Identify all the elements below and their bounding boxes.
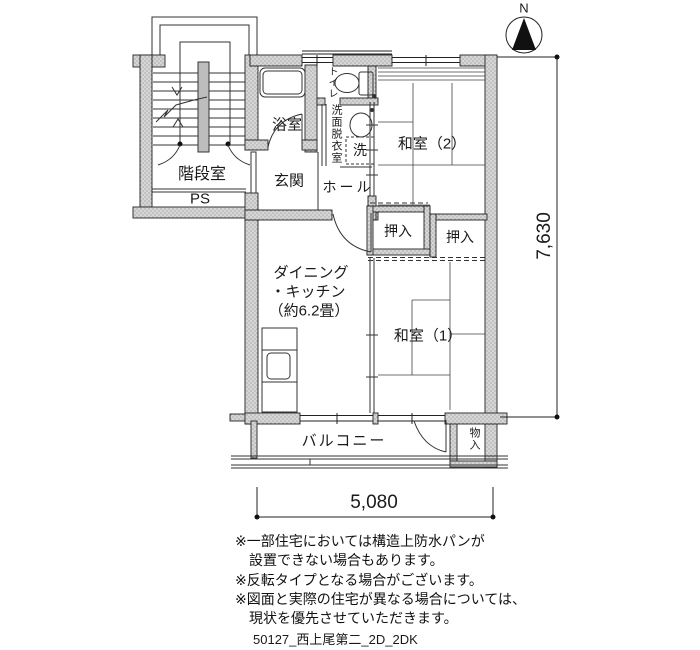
label-closet-left: 押入: [384, 221, 412, 241]
label-dining-kitchen-2: ・キッチン: [270, 281, 345, 302]
label-closet-right: 押入: [446, 227, 474, 247]
note-line-1: ※一部住宅においては構造上防水パンが: [235, 531, 485, 551]
dimension-vertical-value: 7,630: [534, 212, 556, 260]
label-bath: 浴室: [272, 114, 302, 135]
label-entrance: 玄関: [274, 170, 304, 191]
label-storage: 物入: [466, 427, 482, 451]
note-line-2: 設置できない場合もあります。: [235, 550, 444, 570]
floor-plan-page: 階段室 PS 浴室 トイレ 洗面脱衣室 洗 玄関 ホール 和室（2） 押入 押入…: [0, 0, 700, 650]
north-label: N: [519, 1, 528, 16]
label-japanese-room-2: 和室（2）: [398, 133, 466, 154]
label-stairwell: 階段室: [178, 160, 226, 184]
north-arrow-icon: [506, 17, 542, 53]
note-line-3: ※反転タイプとなる場合がございます。: [235, 570, 483, 590]
bathtub: [260, 68, 305, 97]
label-washroom: 洗面脱衣室: [328, 104, 344, 164]
label-toilet: トイレ: [324, 66, 339, 99]
label-washer: 洗: [353, 140, 367, 160]
kitchen-counter: [262, 328, 297, 412]
label-dining-kitchen-3: （約6.2畳）: [269, 300, 350, 321]
label-hall: ホール: [323, 177, 374, 197]
dimension-horizontal-value: 5,080: [350, 492, 398, 514]
plan-code: 50127_西上尾第二_2D_2DK: [253, 629, 418, 648]
kitchen-sink: [267, 353, 290, 379]
label-pipe-space: PS: [190, 191, 210, 208]
label-dining-kitchen-1: ダイニング: [273, 262, 348, 283]
note-line-4: ※図面と実際の住宅が異なる場合については、: [235, 589, 526, 609]
label-japanese-room-1: 和室（1）: [394, 325, 462, 346]
note-line-5: 現状を優先させていただきます。: [235, 608, 458, 628]
label-balcony: バルコニー: [302, 430, 387, 451]
